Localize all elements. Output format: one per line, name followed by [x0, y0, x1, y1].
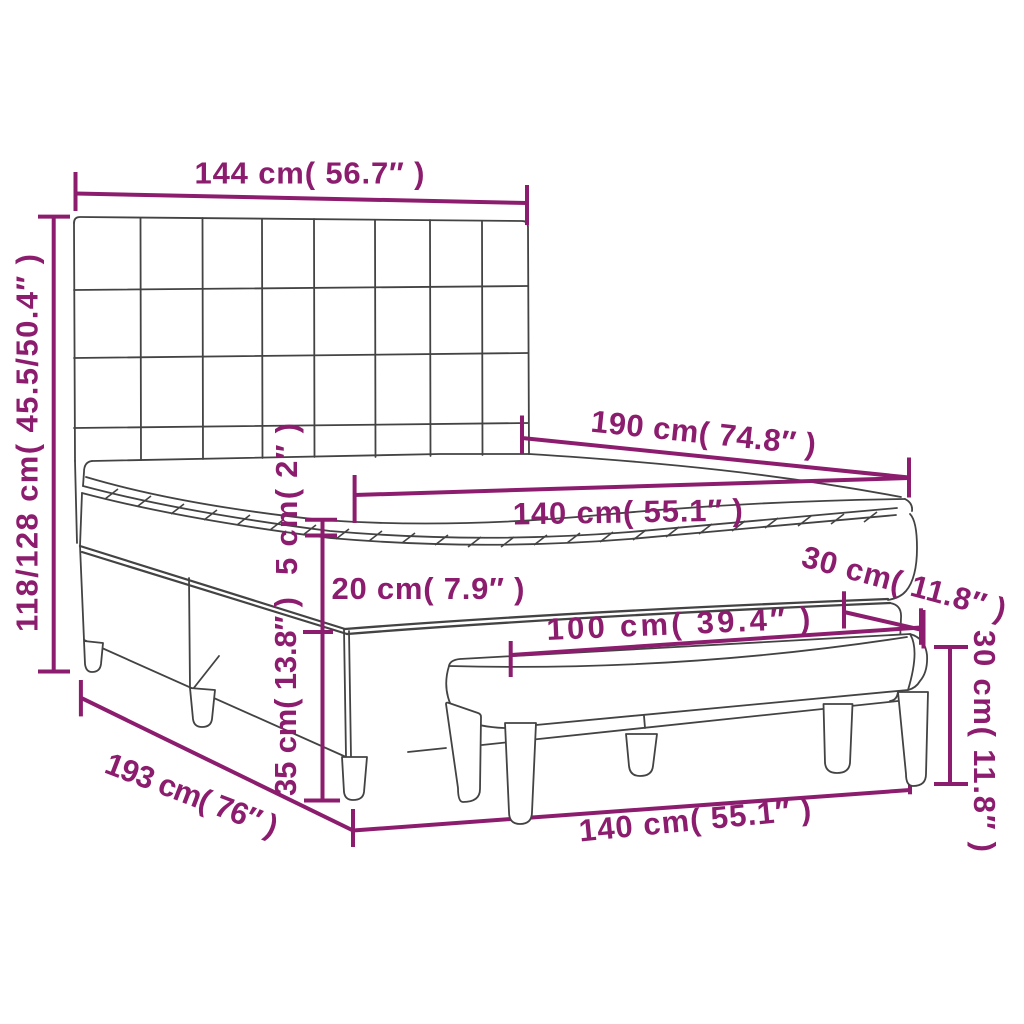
svg-text:20 cm( 7.9″ ): 20 cm( 7.9″ )	[332, 571, 525, 606]
svg-text:118/128 cm( 45.5/50.4″ ): 118/128 cm( 45.5/50.4″ )	[10, 254, 45, 632]
svg-text:144 cm( 56.7″ ): 144 cm( 56.7″ )	[195, 156, 425, 191]
svg-text:5 cm( 2″ ): 5 cm( 2″ )	[269, 423, 304, 575]
svg-text:30 cm( 11.8″ ): 30 cm( 11.8″ )	[967, 630, 1002, 852]
svg-text:35 cm( 13.8″ ): 35 cm( 13.8″ )	[268, 597, 303, 796]
svg-text:140 cm( 55.1″ ): 140 cm( 55.1″ )	[513, 492, 744, 531]
